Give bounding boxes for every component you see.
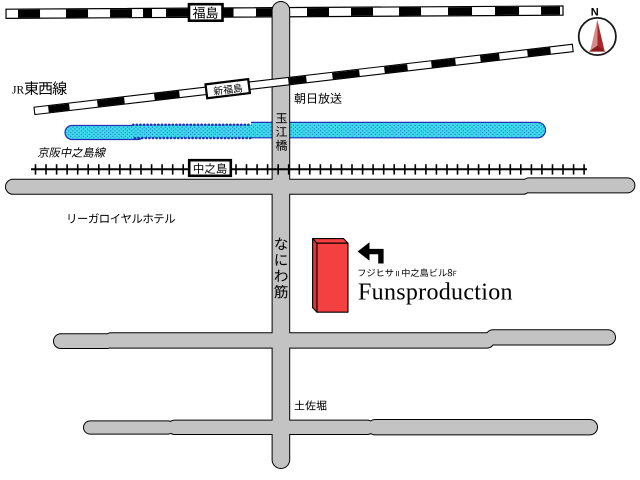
svg-text:N: N [591,7,599,19]
svg-text:Funsproduction: Funsproduction [358,279,513,305]
svg-text:JR: JR [12,85,24,97]
